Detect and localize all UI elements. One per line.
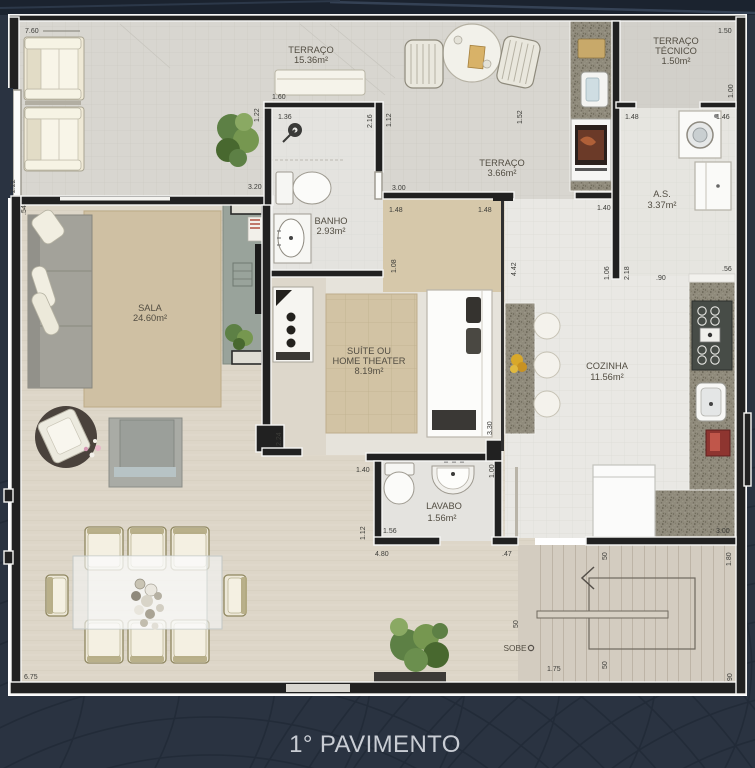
svg-text:90: 90 <box>727 673 734 681</box>
svg-text:6.75: 6.75 <box>24 674 38 681</box>
svg-text:4.42: 4.42 <box>511 262 518 276</box>
svg-text:15.36m²: 15.36m² <box>294 55 328 65</box>
svg-text:3.00: 3.00 <box>392 185 406 192</box>
svg-text:2.24: 2.24 <box>276 432 283 446</box>
svg-text:2.18: 2.18 <box>624 266 631 280</box>
svg-text:1.46: 1.46 <box>716 114 730 121</box>
svg-text:1.48: 1.48 <box>625 114 639 121</box>
svg-text:BANHO: BANHO <box>314 216 347 226</box>
svg-text:1.22: 1.22 <box>254 108 261 122</box>
svg-text:1.52: 1.52 <box>517 110 524 124</box>
svg-text:50: 50 <box>602 661 609 669</box>
svg-text:1.50m²: 1.50m² <box>662 56 691 66</box>
svg-text:1.00: 1.00 <box>728 84 735 98</box>
svg-text:3.20: 3.20 <box>248 184 262 191</box>
svg-text:1.12: 1.12 <box>360 526 367 540</box>
svg-text:50: 50 <box>602 552 609 560</box>
svg-text:2.93m²: 2.93m² <box>317 226 346 236</box>
svg-text:TERRAÇO: TERRAÇO <box>653 36 698 46</box>
svg-text:COZINHA: COZINHA <box>586 361 629 371</box>
svg-text:.56: .56 <box>722 266 732 273</box>
svg-text:50: 50 <box>513 620 520 628</box>
svg-text:SALA: SALA <box>138 303 163 313</box>
svg-text:3.37m²: 3.37m² <box>648 200 677 210</box>
svg-text:1.36: 1.36 <box>278 114 292 121</box>
svg-text:3.30: 3.30 <box>487 421 494 435</box>
svg-text:.54: .54 <box>21 205 28 215</box>
svg-text:7.60: 7.60 <box>25 28 39 35</box>
svg-text:1.40: 1.40 <box>597 205 611 212</box>
svg-text:1.12: 1.12 <box>386 113 393 127</box>
svg-text:1.00: 1.00 <box>489 464 496 478</box>
svg-text:1.56m²: 1.56m² <box>428 513 457 523</box>
svg-text:1.48: 1.48 <box>478 207 492 214</box>
svg-text:1.48: 1.48 <box>389 207 403 214</box>
svg-text:1.50: 1.50 <box>718 28 732 35</box>
svg-text:24.60m²: 24.60m² <box>133 313 167 323</box>
svg-text:2.16: 2.16 <box>367 114 374 128</box>
svg-text:3.66m²: 3.66m² <box>488 168 517 178</box>
svg-text:SUÍTE OU: SUÍTE OU <box>347 346 391 356</box>
svg-text:1.08: 1.08 <box>391 259 398 273</box>
svg-text:3.00: 3.00 <box>716 528 730 535</box>
svg-text:TERRAÇO: TERRAÇO <box>479 158 524 168</box>
svg-text:TÉCNICO: TÉCNICO <box>655 46 697 56</box>
svg-text:SOBE: SOBE <box>503 643 527 653</box>
svg-text:11.56m²: 11.56m² <box>590 372 623 382</box>
svg-text:2.22: 2.22 <box>10 179 17 193</box>
svg-text:A.S.: A.S. <box>653 189 671 199</box>
svg-text:HOME THEATER: HOME THEATER <box>332 356 405 366</box>
svg-text:1.60: 1.60 <box>272 94 286 101</box>
svg-text:LAVABO: LAVABO <box>426 501 462 511</box>
svg-text:8.19m²: 8.19m² <box>355 366 384 376</box>
svg-text:1.40: 1.40 <box>356 467 370 474</box>
svg-text:TERRAÇO: TERRAÇO <box>288 45 333 55</box>
svg-text:1° PAVIMENTO: 1° PAVIMENTO <box>289 731 461 758</box>
svg-text:.90: .90 <box>656 275 666 282</box>
svg-text:1.06: 1.06 <box>604 266 611 280</box>
svg-text:1.80: 1.80 <box>726 552 733 566</box>
svg-text:1.75: 1.75 <box>547 666 561 673</box>
svg-text:1.56: 1.56 <box>383 528 397 535</box>
svg-text:4.80: 4.80 <box>375 551 389 558</box>
svg-text:.47: .47 <box>502 551 512 558</box>
